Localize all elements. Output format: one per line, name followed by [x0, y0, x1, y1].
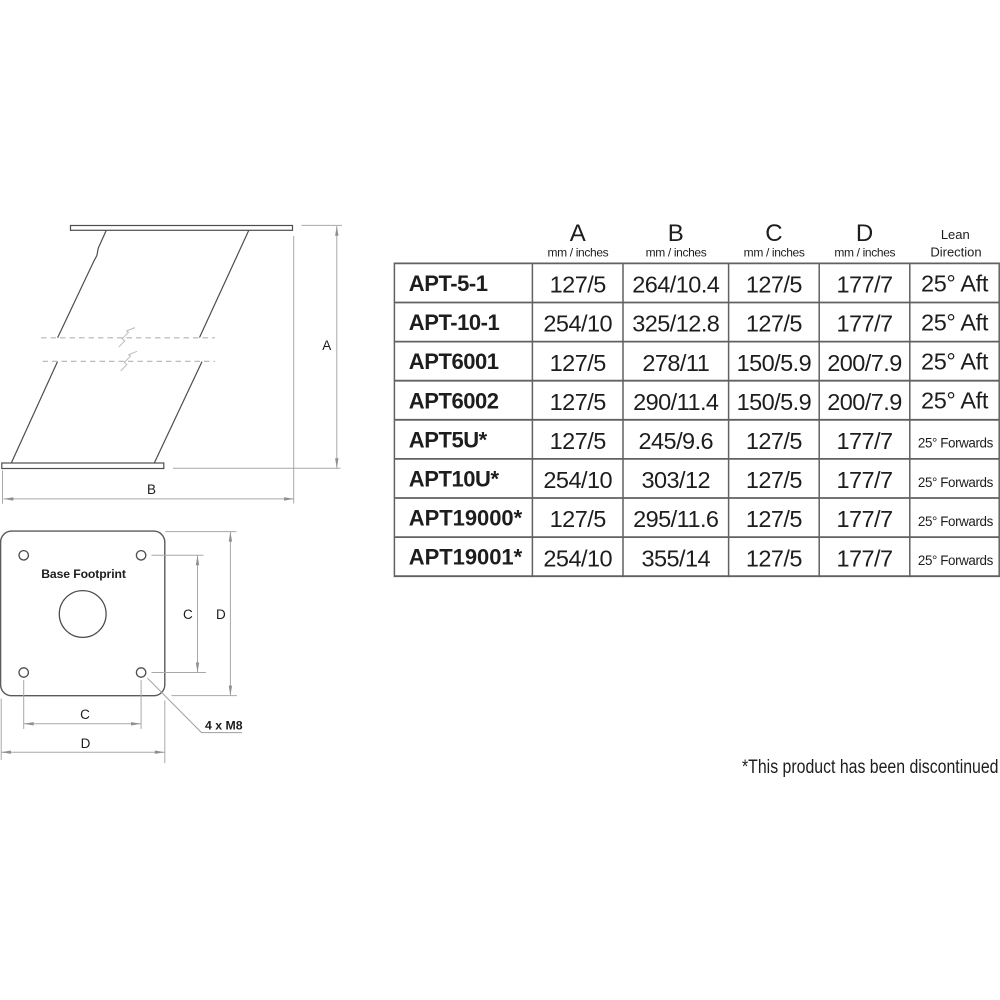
svg-text:150/5.9: 150/5.9	[737, 389, 812, 415]
svg-text:Base Footprint: Base Footprint	[41, 567, 126, 581]
svg-text:127/5: 127/5	[746, 545, 803, 571]
svg-text:278/11: 278/11	[642, 350, 709, 376]
svg-text:127/5: 127/5	[550, 506, 607, 532]
svg-text:254/10: 254/10	[543, 467, 612, 493]
svg-text:303/12: 303/12	[642, 467, 711, 493]
svg-text:127/5: 127/5	[746, 506, 803, 532]
svg-text:127/5: 127/5	[746, 428, 803, 454]
svg-text:254/10: 254/10	[543, 311, 612, 337]
svg-text:4 x M8: 4 x M8	[205, 719, 243, 733]
svg-text:D: D	[81, 736, 91, 751]
svg-text:C: C	[765, 220, 782, 247]
svg-text:APT10U*: APT10U*	[409, 467, 500, 492]
svg-text:C: C	[183, 607, 193, 622]
svg-text:254/10: 254/10	[543, 545, 612, 571]
svg-text:D: D	[856, 220, 873, 247]
svg-text:295/11.6: 295/11.6	[633, 506, 719, 532]
svg-text:127/5: 127/5	[550, 389, 607, 415]
svg-text:127/5: 127/5	[550, 272, 607, 298]
svg-text:*This product has been discont: *This product has been discontinued	[742, 757, 999, 778]
svg-text:127/5: 127/5	[550, 428, 607, 454]
svg-text:B: B	[668, 220, 684, 247]
svg-text:APT-5-1: APT-5-1	[409, 271, 488, 296]
svg-text:25° Forwards: 25° Forwards	[918, 553, 994, 568]
svg-text:mm / inches: mm / inches	[547, 245, 608, 259]
svg-text:mm / inches: mm / inches	[744, 245, 805, 259]
svg-text:177/7: 177/7	[836, 428, 892, 454]
svg-text:127/5: 127/5	[746, 272, 803, 298]
svg-text:Direction: Direction	[930, 244, 981, 259]
svg-text:127/5: 127/5	[746, 311, 803, 337]
svg-text:A: A	[570, 220, 586, 247]
svg-text:177/7: 177/7	[836, 467, 892, 493]
svg-text:264/10.4: 264/10.4	[632, 272, 720, 298]
svg-text:25° Aft: 25° Aft	[921, 309, 989, 335]
svg-text:25° Aft: 25° Aft	[921, 349, 989, 375]
svg-text:APT6002: APT6002	[409, 388, 499, 413]
svg-text:A: A	[322, 338, 331, 353]
svg-text:150/5.9: 150/5.9	[737, 350, 812, 376]
svg-text:245/9.6: 245/9.6	[639, 428, 714, 454]
svg-text:127/5: 127/5	[550, 350, 607, 376]
svg-text:177/7: 177/7	[836, 272, 892, 298]
svg-text:25° Aft: 25° Aft	[921, 270, 989, 296]
svg-text:APT6001: APT6001	[409, 349, 499, 374]
svg-text:APT19001*: APT19001*	[409, 545, 523, 570]
svg-text:mm / inches: mm / inches	[834, 245, 895, 259]
svg-text:C: C	[80, 707, 90, 722]
svg-text:Lean: Lean	[941, 227, 970, 242]
svg-text:25° Aft: 25° Aft	[921, 388, 989, 414]
svg-text:APT19000*: APT19000*	[409, 506, 523, 531]
svg-text:200/7.9: 200/7.9	[827, 350, 902, 376]
svg-text:200/7.9: 200/7.9	[827, 389, 902, 415]
svg-text:177/7: 177/7	[836, 311, 892, 337]
svg-text:290/11.4: 290/11.4	[633, 389, 719, 415]
svg-text:25° Forwards: 25° Forwards	[918, 475, 994, 490]
svg-text:25° Forwards: 25° Forwards	[918, 514, 994, 529]
svg-text:25° Forwards: 25° Forwards	[918, 436, 994, 451]
svg-text:APT-10-1: APT-10-1	[409, 310, 500, 335]
svg-text:355/14: 355/14	[642, 545, 711, 571]
svg-text:325/12.8: 325/12.8	[632, 311, 720, 337]
svg-text:177/7: 177/7	[836, 506, 892, 532]
svg-text:B: B	[147, 482, 156, 497]
svg-text:mm / inches: mm / inches	[646, 245, 707, 259]
svg-text:D: D	[216, 607, 226, 622]
svg-text:127/5: 127/5	[746, 467, 803, 493]
svg-text:177/7: 177/7	[836, 545, 892, 571]
svg-text:APT5U*: APT5U*	[409, 427, 488, 452]
